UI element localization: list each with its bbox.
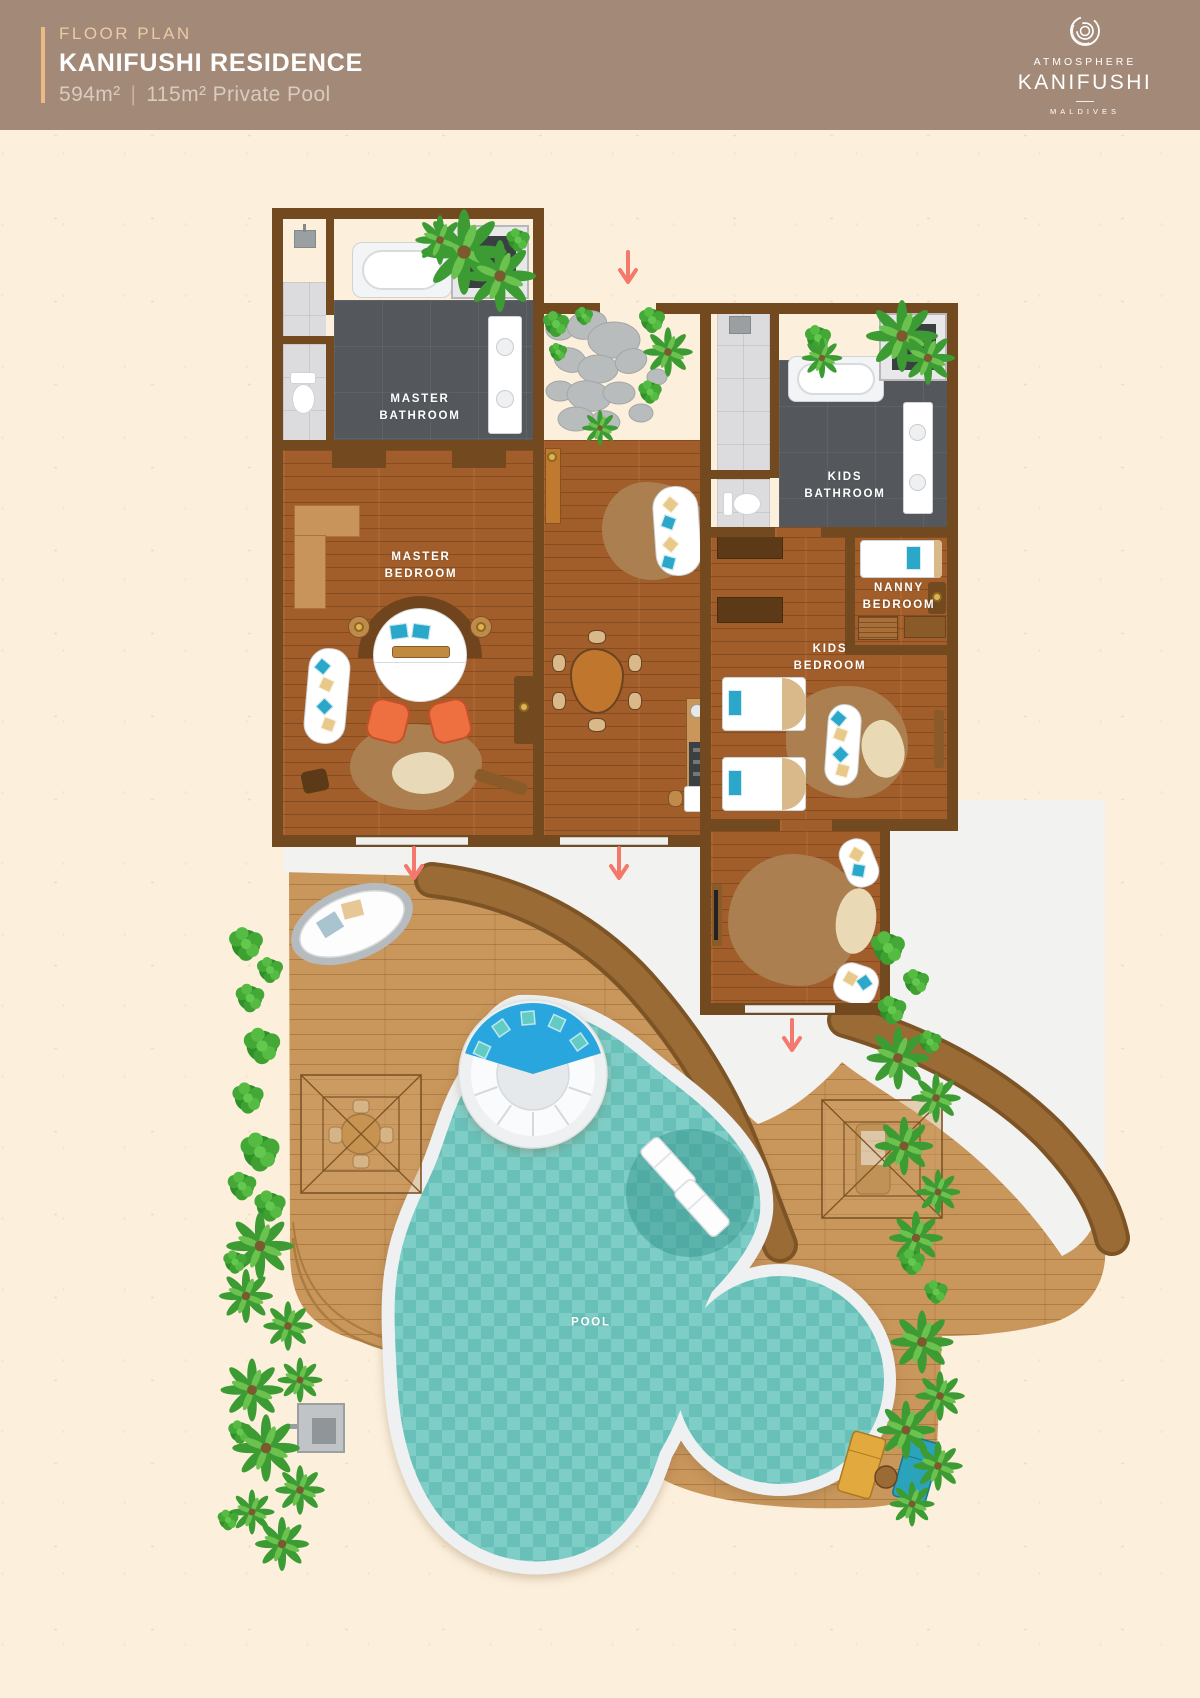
brand-kanifushi: KANIFUSHI: [1010, 71, 1160, 95]
plants-and-arrows: [0, 0, 1200, 1698]
header-bar: FLOOR PLAN KANIFUSHI RESIDENCE 594m²|115…: [0, 0, 1200, 130]
pool-label: POOL: [546, 1314, 636, 1331]
exit-arrow: [406, 848, 422, 878]
floor-plan-eyebrow: FLOOR PLAN: [59, 24, 363, 44]
header-accent-line: [41, 27, 45, 103]
brand-maldives: MALDIVES: [1010, 107, 1160, 116]
villa-area: 594m²: [59, 83, 121, 106]
brand-divider: [1076, 101, 1094, 102]
page-title: KANIFUSHI RESIDENCE: [59, 49, 363, 78]
subtitle-divider: |: [131, 83, 137, 106]
area-subtitle: 594m²|115m² Private Pool: [59, 83, 363, 107]
atmosphere-logo-icon: [1065, 10, 1105, 52]
exit-arrow: [611, 848, 627, 878]
brand-logo: ATMOSPHERE KANIFUSHI MALDIVES: [1010, 10, 1160, 116]
entry-arrow: [620, 252, 636, 282]
brand-atmosphere: ATMOSPHERE: [1010, 56, 1160, 68]
pool-area: 115m² Private Pool: [146, 83, 330, 106]
exit-arrow: [784, 1020, 800, 1050]
